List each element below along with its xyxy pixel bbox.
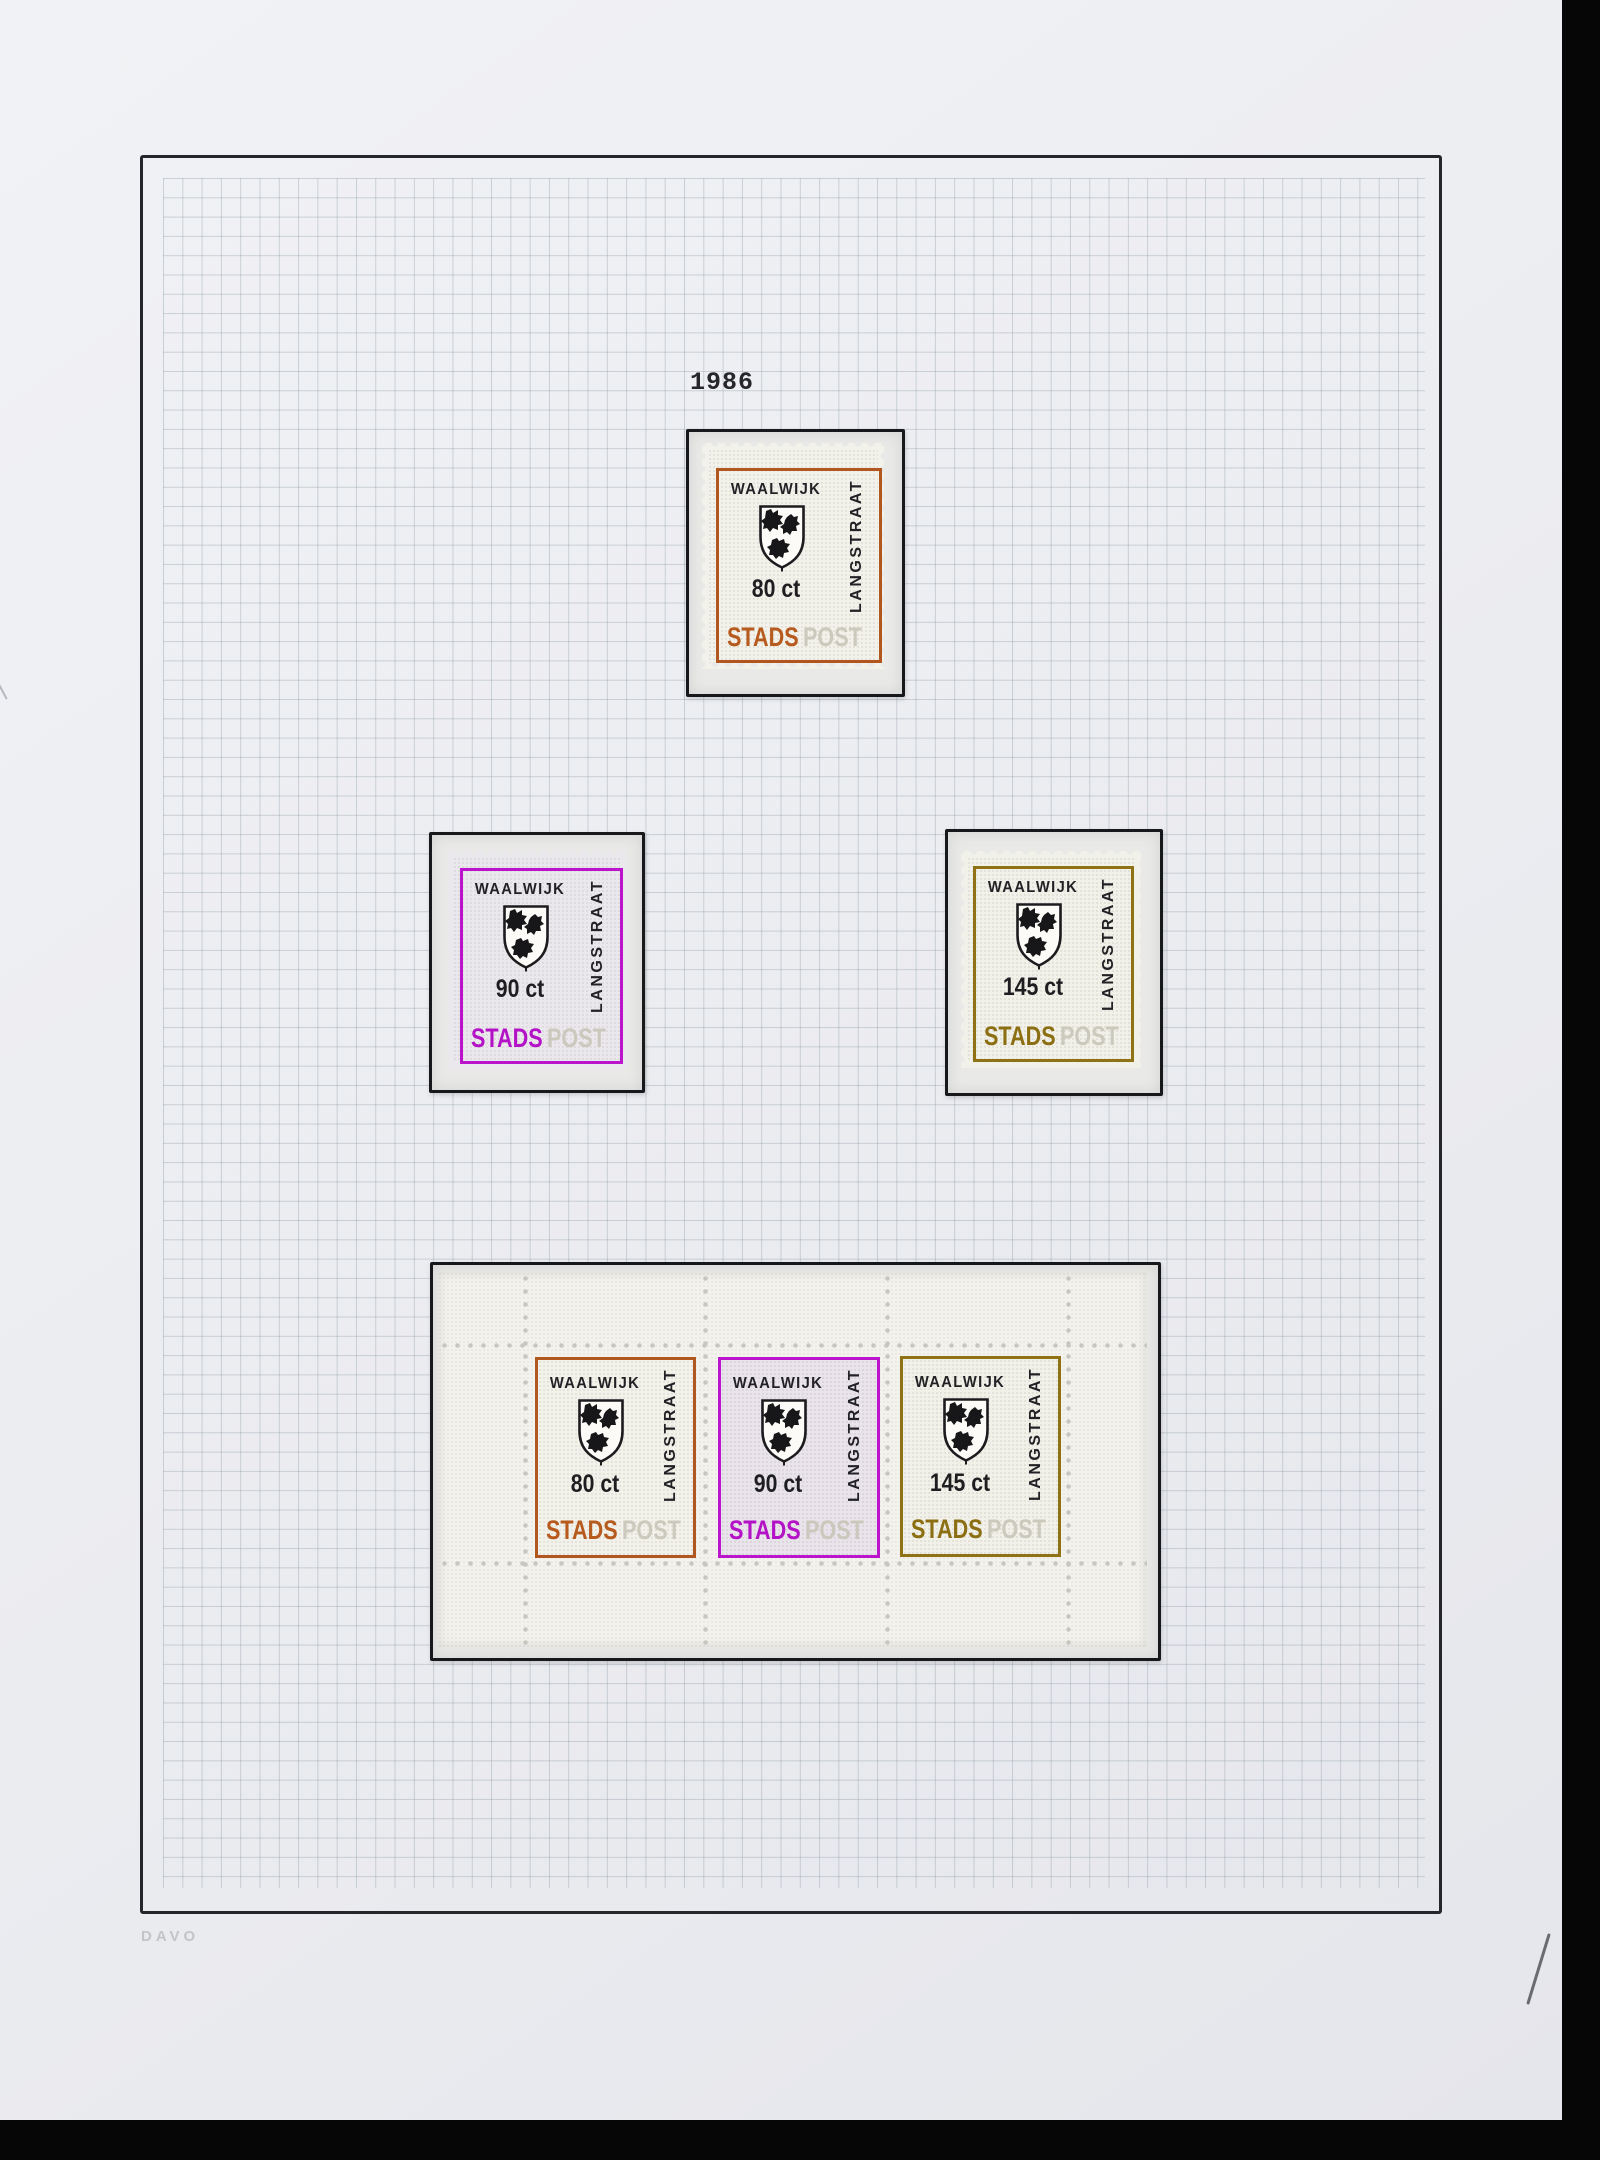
perforation-column	[522, 1272, 529, 1647]
stads-text: STADS	[727, 627, 799, 649]
stamp-mount-80ct: WAALWIJK 80 ct LANGSTRAAT STADS POST	[686, 429, 905, 697]
coat-of-arms-shield	[940, 1395, 992, 1465]
brand-label: DAVO	[141, 1928, 199, 1945]
stamp-value: 145 ct	[986, 973, 1080, 1002]
coat-of-arms-shield	[500, 902, 552, 972]
stads-text: STADS	[984, 1026, 1056, 1048]
stamp-value: 80 ct	[729, 575, 823, 604]
souvenir-sheet: WAALWIJK 80 ct LANGSTRAAT STADS POST WAA	[438, 1272, 1147, 1647]
stamp-region-label: LANGSTRAAT	[846, 1363, 864, 1507]
post-ghost-text: POST	[987, 1519, 1046, 1541]
stamp-region-label: LANGSTRAAT	[1027, 1362, 1045, 1506]
stads-text: STADS	[729, 1520, 801, 1542]
stamp-mount-90ct: WAALWIJK 90 ct LANGSTRAAT STADS POST	[429, 832, 645, 1093]
post-ghost-text: POST	[622, 1520, 681, 1542]
coat-of-arms-shield	[575, 1396, 627, 1466]
stamp-90ct: WAALWIJK 90 ct LANGSTRAAT STADS POST	[447, 851, 627, 1068]
stamp-145ct: WAALWIJK 145 ct LANGSTRAAT STADS POST	[961, 851, 1141, 1068]
stads-text: STADS	[471, 1028, 543, 1050]
perforation-column	[1065, 1272, 1072, 1647]
stamp-city-label: WAALWIJK	[727, 1375, 828, 1393]
year-label: 1986	[690, 368, 754, 397]
stamp-region-label: LANGSTRAAT	[1100, 872, 1118, 1016]
stamp-city-label: WAALWIJK	[725, 481, 826, 499]
stamp-frame: WAALWIJK 145 ct LANGSTRAAT STADS POST	[973, 866, 1134, 1062]
stads-text: STADS	[911, 1519, 983, 1541]
stamp-value: 80 ct	[548, 1470, 642, 1499]
stamp-city-label: WAALWIJK	[469, 881, 570, 899]
stamp-value: 90 ct	[473, 975, 567, 1004]
sheet-stamp-80ct: WAALWIJK 80 ct LANGSTRAAT STADS POST	[535, 1357, 696, 1558]
stamp-region-label: LANGSTRAAT	[589, 874, 607, 1018]
post-ghost-text: POST	[803, 627, 862, 649]
souvenir-sheet-mount: WAALWIJK 80 ct LANGSTRAAT STADS POST WAA	[430, 1262, 1161, 1661]
stamp-city-label: WAALWIJK	[982, 879, 1083, 897]
stamp-80ct: WAALWIJK 80 ct LANGSTRAAT STADS POST	[702, 443, 884, 669]
post-ghost-text: POST	[805, 1520, 864, 1542]
stamp-value: 145 ct	[913, 1469, 1007, 1498]
coat-of-arms-shield	[756, 502, 808, 572]
post-ghost-text: POST	[1060, 1026, 1119, 1048]
post-ghost-text: POST	[547, 1028, 606, 1050]
perforation-row	[438, 1342, 1147, 1349]
stamp-frame: WAALWIJK 80 ct LANGSTRAAT STADS POST	[716, 468, 882, 663]
coat-of-arms-shield	[1013, 900, 1065, 970]
stamp-mount-145ct: WAALWIJK 145 ct LANGSTRAAT STADS POST	[945, 829, 1163, 1096]
stamp-region-label: LANGSTRAAT	[662, 1363, 680, 1507]
stamp-value: 90 ct	[731, 1470, 825, 1499]
stamp-frame: WAALWIJK 90 ct LANGSTRAAT STADS POST	[460, 868, 623, 1064]
sheet-stamp-90ct: WAALWIJK 90 ct LANGSTRAAT STADS POST	[718, 1357, 880, 1558]
perforation-column	[884, 1272, 891, 1647]
scanned-photo: 1986 WAALWIJK 80 ct LANGSTRAAT STADS	[0, 0, 1600, 2160]
perforation-column	[702, 1272, 709, 1647]
coat-of-arms-shield	[758, 1396, 810, 1466]
stads-text: STADS	[546, 1520, 618, 1542]
stamp-region-label: LANGSTRAAT	[848, 474, 866, 618]
perforation-row	[438, 1560, 1147, 1567]
stamp-city-label: WAALWIJK	[544, 1375, 645, 1393]
stamp-city-label: WAALWIJK	[909, 1374, 1010, 1392]
sheet-stamp-145ct: WAALWIJK 145 ct LANGSTRAAT STADS POST	[900, 1356, 1061, 1557]
